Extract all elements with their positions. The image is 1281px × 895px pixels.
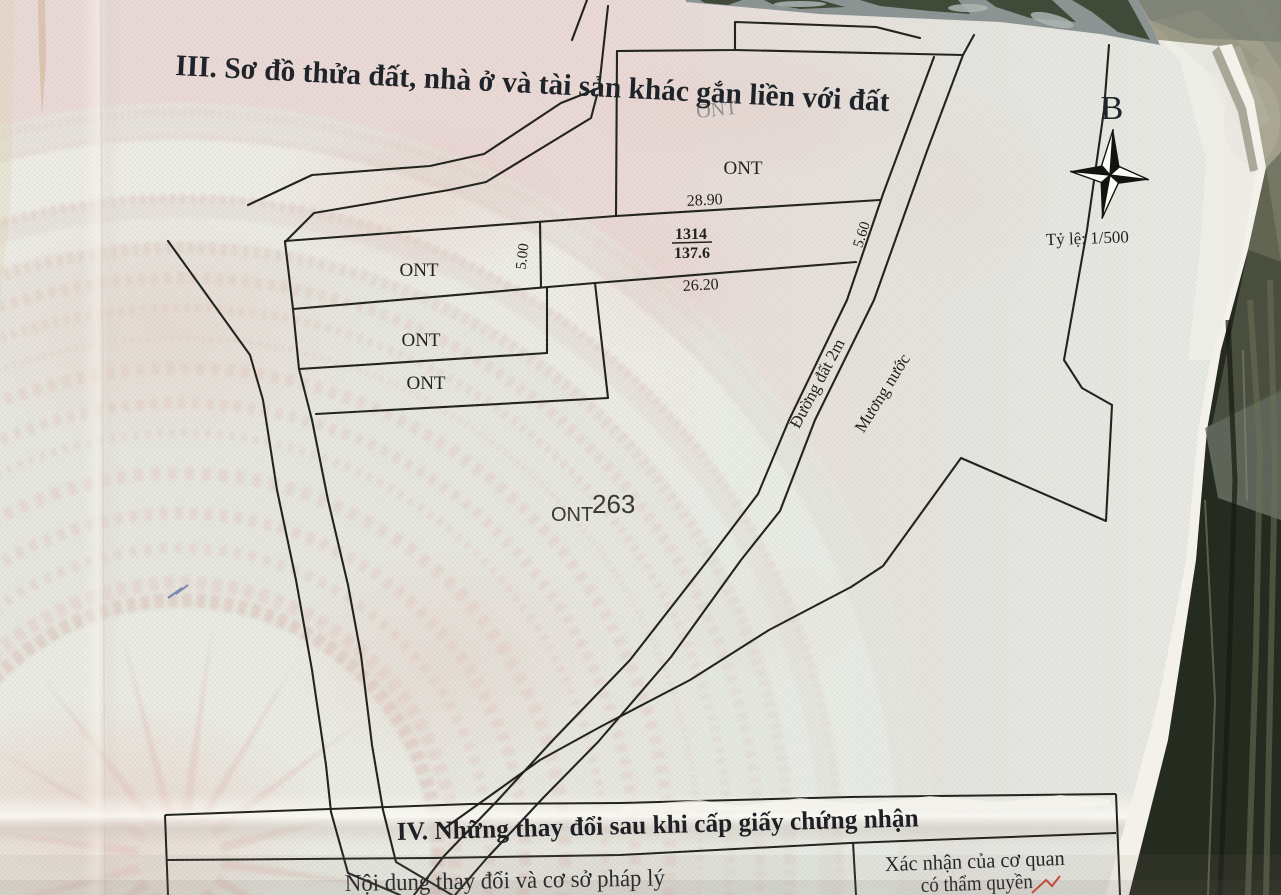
svg-text:B: B — [1101, 90, 1124, 127]
svg-text:ONT: ONT — [406, 373, 445, 394]
svg-text:ONT: ONT — [401, 330, 440, 351]
svg-text:26.20: 26.20 — [682, 276, 719, 295]
svg-text:263: 263 — [592, 489, 635, 519]
svg-text:Tỷ lệ: 1/500: Tỷ lệ: 1/500 — [1045, 227, 1129, 249]
svg-text:ONT: ONT — [723, 158, 762, 179]
svg-text:ONT: ONT — [399, 260, 438, 281]
svg-text:ONT: ONT — [551, 504, 593, 526]
svg-text:137.6: 137.6 — [674, 245, 710, 262]
svg-text:28.90: 28.90 — [686, 191, 723, 210]
svg-text:5.00: 5.00 — [513, 243, 532, 271]
svg-text:ONT: ONT — [695, 97, 738, 123]
svg-text:1314: 1314 — [675, 226, 707, 243]
